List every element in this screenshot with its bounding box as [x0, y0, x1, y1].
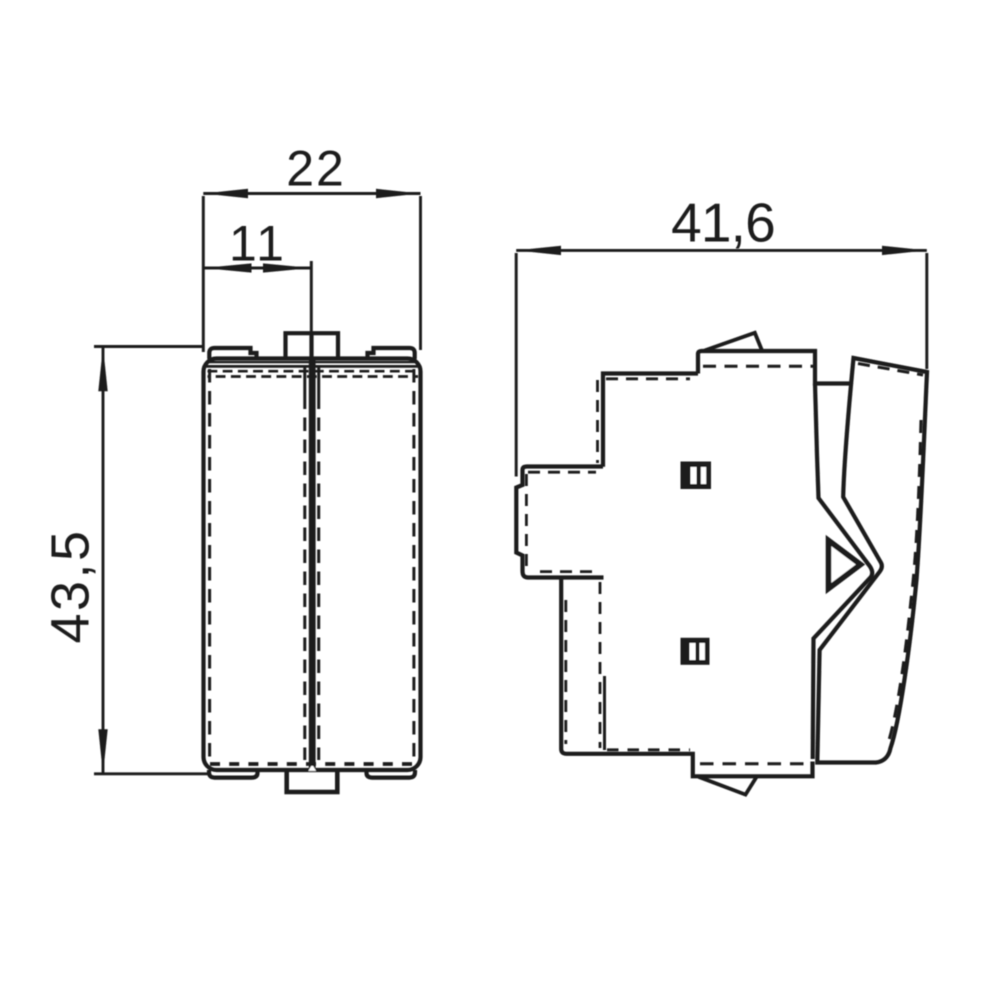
svg-text:41,6: 41,6	[671, 192, 775, 254]
svg-text:11: 11	[229, 216, 287, 272]
svg-text:43,5: 43,5	[41, 528, 101, 643]
svg-text:22: 22	[286, 141, 346, 197]
